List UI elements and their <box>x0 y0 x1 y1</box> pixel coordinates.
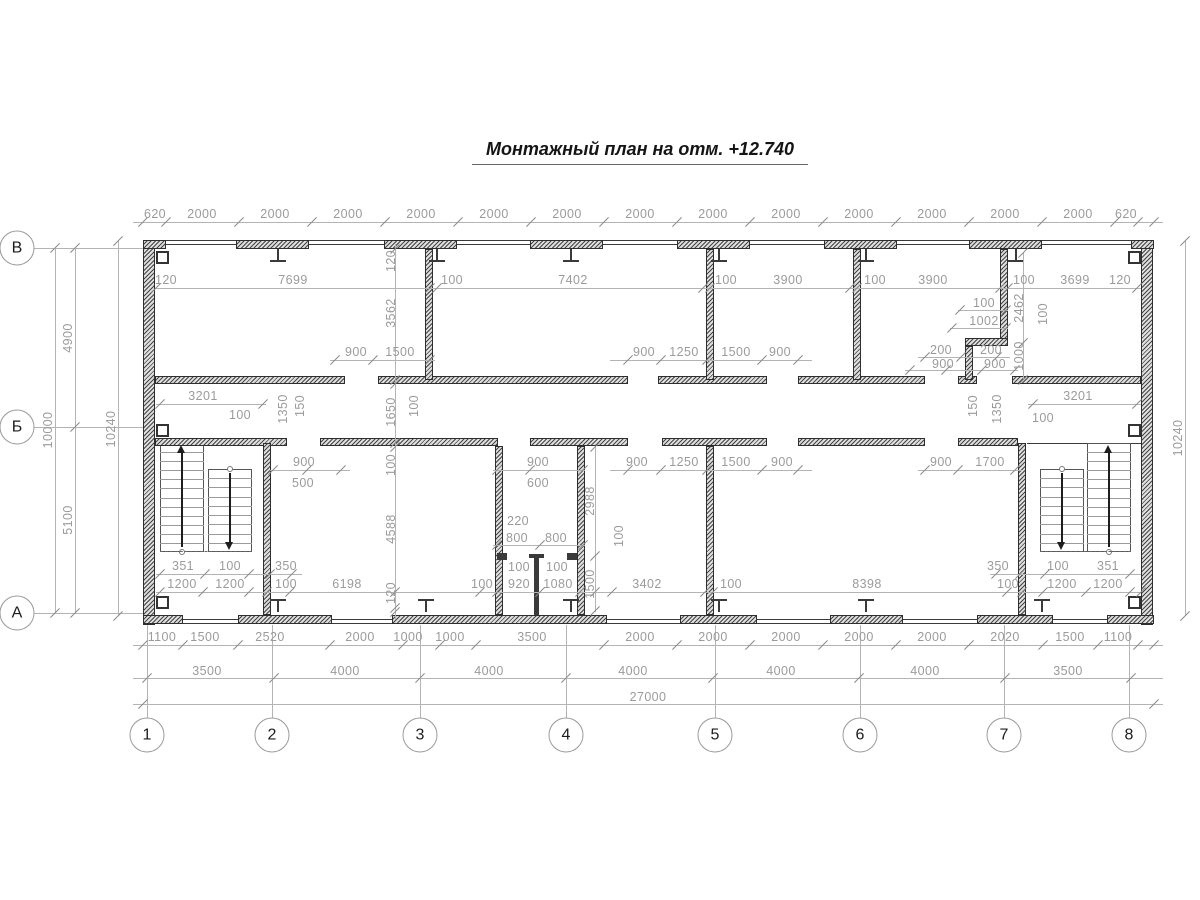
dim-label: 2000 <box>260 207 289 221</box>
dim-label: 1000 <box>1012 341 1026 370</box>
dimension-line <box>610 470 812 471</box>
dim-label: 1500 <box>721 345 750 359</box>
dim-label: 900 <box>984 357 1006 371</box>
dim-label: 2000 <box>698 630 727 644</box>
dim-label: 3900 <box>918 273 947 287</box>
wall-segment <box>143 241 155 625</box>
dim-label: 4000 <box>910 664 939 678</box>
wall-segment <box>155 376 345 384</box>
dim-label: 620 <box>144 207 166 221</box>
dim-label: 900 <box>527 455 549 469</box>
dim-label: 2000 <box>479 207 508 221</box>
dim-label: 2000 <box>771 207 800 221</box>
floor-plan-canvas: Монтажный план на отм. +12.740 620200020… <box>0 0 1200 900</box>
dim-label: 2020 <box>990 630 1019 644</box>
dim-label: 500 <box>292 476 314 490</box>
dim-label: 2000 <box>917 630 946 644</box>
grid-axis-bubble: 3 <box>403 718 438 753</box>
dim-label: 2520 <box>255 630 284 644</box>
wall-segment <box>1107 615 1154 624</box>
wall-segment <box>530 438 628 446</box>
dim-label: 1200 <box>215 577 244 591</box>
stair-direction-arrow <box>229 473 231 542</box>
grid-axis-bubble: В <box>0 231 35 266</box>
dim-label: 220 <box>507 514 529 528</box>
dim-label: 4588 <box>384 514 398 543</box>
dim-label: 1500 <box>1055 630 1084 644</box>
grid-axis-bubble: 8 <box>1112 718 1147 753</box>
corner-block <box>1128 424 1141 437</box>
stair-start-ring <box>1106 549 1112 555</box>
dimension-line <box>1185 241 1186 616</box>
dim-label: 2000 <box>844 207 873 221</box>
stair-arrowhead <box>1104 445 1112 453</box>
dim-label: 4900 <box>61 323 75 352</box>
dim-label: 1350 <box>276 394 290 423</box>
wall-segment <box>143 615 183 624</box>
dim-label: 6198 <box>332 577 361 591</box>
wall-segment <box>853 249 861 380</box>
dim-label: 600 <box>527 476 549 490</box>
dim-label: 3500 <box>192 664 221 678</box>
dim-label: 350 <box>275 559 297 573</box>
dim-label: 1250 <box>669 345 698 359</box>
center-dash-line <box>1040 551 1131 552</box>
dim-label: 1500 <box>721 455 750 469</box>
wall-segment <box>677 240 750 249</box>
door-jamb <box>529 554 544 558</box>
dim-label: 3201 <box>188 389 217 403</box>
dimension-line <box>610 360 812 361</box>
dim-label: 200 <box>980 343 1002 357</box>
dim-label: 100 <box>715 273 737 287</box>
dim-label: 2000 <box>917 207 946 221</box>
column-symbol <box>711 260 727 262</box>
corner-block <box>156 596 169 609</box>
dim-label: 4000 <box>474 664 503 678</box>
column-symbol <box>711 599 727 601</box>
dimension-line <box>156 404 266 405</box>
dim-label: 100 <box>441 273 463 287</box>
column-symbol <box>570 600 572 612</box>
dimension-line <box>118 241 119 616</box>
dim-label: 900 <box>345 345 367 359</box>
door-jamb <box>534 558 539 615</box>
dim-label: 2462 <box>1012 293 1026 322</box>
dim-label: 2000 <box>844 630 873 644</box>
grid-axis-bubble: 5 <box>698 718 733 753</box>
dim-label: 150 <box>293 395 307 417</box>
dim-label: 3562 <box>384 298 398 327</box>
dim-label: 1700 <box>975 455 1004 469</box>
column-symbol <box>865 600 867 612</box>
dim-label: 1500 <box>190 630 219 644</box>
dim-label: 1650 <box>384 397 398 426</box>
column-symbol <box>718 600 720 612</box>
wall-segment <box>830 615 903 624</box>
stair-start-ring <box>179 549 185 555</box>
dim-label: 351 <box>172 559 194 573</box>
dim-label: 100 <box>1013 273 1035 287</box>
stair-start-ring <box>1059 466 1065 472</box>
corner-block <box>156 424 169 437</box>
dim-label: 10240 <box>1171 420 1185 457</box>
dim-label: 800 <box>506 531 528 545</box>
dimension-line <box>156 574 302 575</box>
dim-label: 900 <box>932 357 954 371</box>
dim-label: 4000 <box>618 664 647 678</box>
dim-label: 100 <box>508 560 530 574</box>
dim-label: 7402 <box>558 273 587 287</box>
dim-label: 2000 <box>187 207 216 221</box>
wall-segment <box>392 615 607 624</box>
dim-label: 900 <box>771 455 793 469</box>
dim-label: 100 <box>720 577 742 591</box>
column-symbol <box>277 600 279 612</box>
dim-label: 100 <box>864 273 886 287</box>
wall-segment <box>824 240 897 249</box>
dim-label: 2000 <box>345 630 374 644</box>
dimension-line <box>918 470 1022 471</box>
wall-segment <box>958 438 1018 446</box>
wall-segment <box>236 240 309 249</box>
dimension-line <box>156 288 1141 289</box>
wall-segment <box>662 438 767 446</box>
dim-label: 920 <box>508 577 530 591</box>
dim-label: 10000 <box>41 412 55 449</box>
dim-label: 2000 <box>625 207 654 221</box>
dim-label: 27000 <box>630 690 667 704</box>
dim-label: 7699 <box>278 273 307 287</box>
dim-label: 100 <box>229 408 251 422</box>
wall-segment <box>977 615 1053 624</box>
dim-label: 800 <box>545 531 567 545</box>
wall-segment <box>143 240 166 249</box>
stair-arrowhead <box>177 445 185 453</box>
dim-label: 1002 <box>969 314 998 328</box>
corner-block <box>156 251 169 264</box>
dimension-line <box>958 310 1008 311</box>
dimension-line <box>133 678 1163 679</box>
column-symbol <box>418 599 434 601</box>
grid-axis-bubble: 6 <box>843 718 878 753</box>
dim-label: 1250 <box>669 455 698 469</box>
column-symbol <box>1034 599 1050 601</box>
dim-label: 100 <box>1047 559 1069 573</box>
dim-label: 1200 <box>167 577 196 591</box>
dim-label: 120 <box>1109 273 1131 287</box>
dim-label: 10240 <box>104 411 118 448</box>
wall-segment <box>238 615 332 624</box>
dim-label: 3201 <box>1063 389 1092 403</box>
dimension-line <box>156 592 1141 593</box>
dim-label: 1000 <box>435 630 464 644</box>
dim-label: 1000 <box>393 630 422 644</box>
dim-label: 3699 <box>1060 273 1089 287</box>
dimension-line <box>133 645 1163 646</box>
dim-label: 900 <box>769 345 791 359</box>
dim-label: 900 <box>293 455 315 469</box>
center-dash-line <box>160 551 252 552</box>
wall-segment <box>320 438 498 446</box>
column-symbol <box>429 260 445 262</box>
dimension-line <box>950 328 1008 329</box>
wall-segment <box>1131 240 1154 249</box>
wall-segment <box>1012 376 1141 384</box>
column-symbol <box>270 260 286 262</box>
dim-label: 100 <box>219 559 241 573</box>
grid-axis-bubble: 4 <box>549 718 584 753</box>
dim-label: 100 <box>407 395 421 417</box>
stair-arrowhead <box>225 542 233 550</box>
dim-label: 100 <box>275 577 297 591</box>
dim-label: 350 <box>987 559 1009 573</box>
dim-label: 120 <box>155 273 177 287</box>
dim-label: 100 <box>1036 303 1050 325</box>
dim-label: 100 <box>973 296 995 310</box>
dim-label: 1200 <box>1093 577 1122 591</box>
dim-label: 3900 <box>773 273 802 287</box>
wall-segment <box>965 346 973 380</box>
column-symbol <box>425 600 427 612</box>
grid-axis-bubble: Б <box>0 410 35 445</box>
grid-axis-bubble: 2 <box>255 718 290 753</box>
dim-label: 3402 <box>632 577 661 591</box>
dim-label: 5100 <box>61 505 75 534</box>
door-jamb <box>567 553 577 560</box>
dim-label: 900 <box>633 345 655 359</box>
dimension-line <box>493 470 585 471</box>
wall-segment <box>530 240 603 249</box>
column-symbol <box>1041 600 1043 612</box>
drawing-title: Монтажный план на отм. +12.740 <box>472 139 808 165</box>
column-symbol <box>270 599 286 601</box>
wall-segment <box>969 240 1042 249</box>
dim-label: 1500 <box>385 345 414 359</box>
dim-label: 351 <box>1097 559 1119 573</box>
stair-direction-arrow <box>1061 473 1063 542</box>
dim-label: 200 <box>930 343 952 357</box>
dimension-line <box>33 248 143 249</box>
dim-label: 2000 <box>990 207 1019 221</box>
grid-axis-bubble: 7 <box>987 718 1022 753</box>
stair-arrowhead <box>1057 542 1065 550</box>
column-symbol <box>858 260 874 262</box>
dim-label: 3500 <box>1053 664 1082 678</box>
dim-label: 2000 <box>552 207 581 221</box>
dim-label: 2000 <box>698 207 727 221</box>
dim-label: 2988 <box>583 486 597 515</box>
dimension-line <box>55 248 56 613</box>
dim-label: 120 <box>384 582 398 604</box>
dim-label: 1200 <box>1047 577 1076 591</box>
dim-label: 620 <box>1115 207 1137 221</box>
wall-segment <box>680 615 757 624</box>
dimension-line <box>133 222 1163 223</box>
dimension-line <box>33 613 143 614</box>
stair-start-ring <box>227 466 233 472</box>
dim-label: 4000 <box>766 664 795 678</box>
wall-segment <box>378 376 628 384</box>
dim-label: 1080 <box>543 577 572 591</box>
dim-label: 150 <box>966 395 980 417</box>
stair-direction-arrow <box>1108 452 1110 547</box>
dimension-line <box>330 360 435 361</box>
dim-label: 4000 <box>330 664 359 678</box>
dim-label: 1350 <box>990 394 1004 423</box>
wall-segment <box>798 376 925 384</box>
dim-label: 100 <box>546 560 568 574</box>
door-jamb <box>497 553 507 560</box>
dim-label: 100 <box>471 577 493 591</box>
dim-label: 120 <box>384 250 398 272</box>
dim-label: 2000 <box>333 207 362 221</box>
dimension-line <box>133 704 1163 705</box>
dim-label: 2000 <box>406 207 435 221</box>
dim-label: 900 <box>626 455 648 469</box>
dimension-line <box>75 248 76 613</box>
dim-label: 100 <box>1032 411 1054 425</box>
dim-label: 2000 <box>771 630 800 644</box>
dimension-line <box>1028 404 1141 405</box>
dim-label: 100 <box>612 525 626 547</box>
dimension-line <box>990 574 1141 575</box>
column-symbol <box>858 599 874 601</box>
grid-axis-bubble: А <box>0 596 35 631</box>
dim-label: 1100 <box>148 630 176 644</box>
wall-segment <box>798 438 925 446</box>
dim-label: 8398 <box>852 577 881 591</box>
wall-segment <box>1141 241 1153 625</box>
dim-label: 900 <box>930 455 952 469</box>
dim-label: 100 <box>384 454 398 476</box>
dim-label: 2000 <box>625 630 654 644</box>
dimension-line <box>566 625 567 719</box>
stair-direction-arrow <box>181 452 183 547</box>
column-symbol <box>1008 260 1024 262</box>
corner-block <box>1128 596 1141 609</box>
dim-label: 1100 <box>1104 630 1132 644</box>
grid-axis-bubble: 1 <box>130 718 165 753</box>
corner-block <box>1128 251 1141 264</box>
dim-label: 100 <box>997 577 1019 591</box>
dim-label: 3500 <box>517 630 546 644</box>
dim-label: 1500 <box>583 569 597 598</box>
column-symbol <box>563 599 579 601</box>
dim-label: 2000 <box>1063 207 1092 221</box>
column-symbol <box>563 260 579 262</box>
